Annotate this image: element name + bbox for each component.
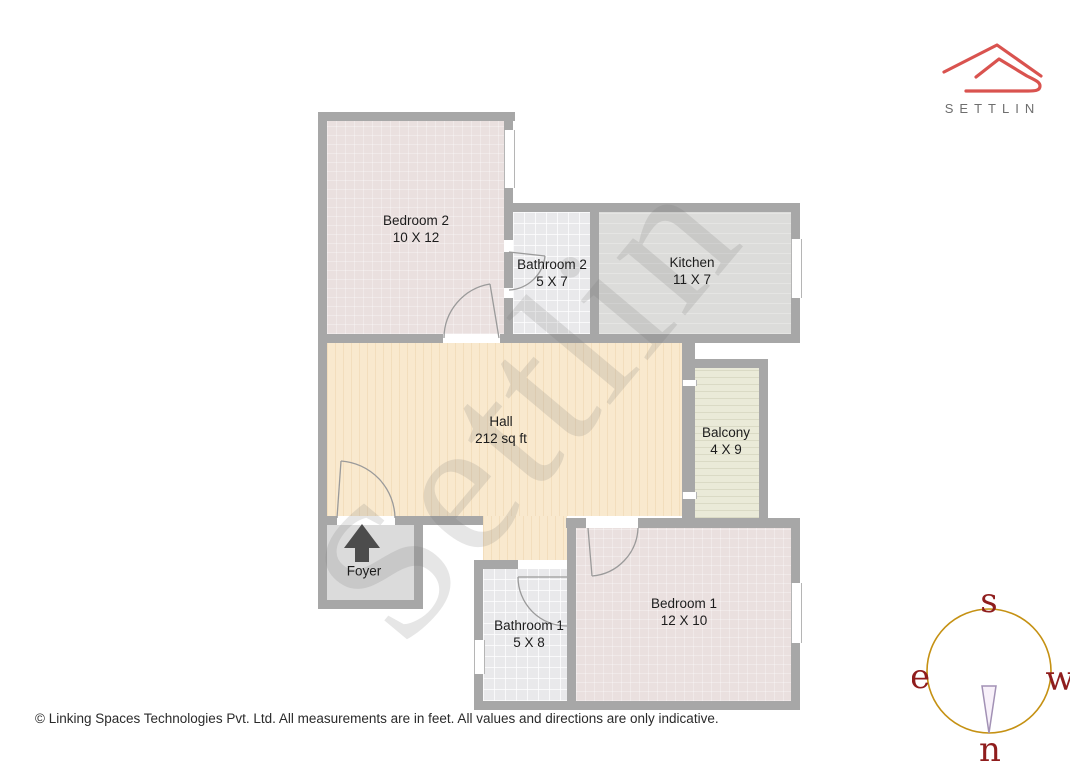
room-name: Balcony xyxy=(702,424,750,441)
door-leaf xyxy=(490,284,499,338)
room-label-foyer: Foyer xyxy=(347,563,382,580)
brand-name: SETTLIN xyxy=(925,101,1060,116)
room-dims: 212 sq ft xyxy=(475,430,527,447)
entrance-arrow-icon xyxy=(344,524,380,548)
room-label-hall: Hall 212 sq ft xyxy=(475,413,527,447)
room-label-bedroom1: Bedroom 1 12 X 10 xyxy=(651,595,717,629)
room-dims: 12 X 10 xyxy=(651,612,717,629)
door-arc xyxy=(592,528,638,576)
copyright-text: © Linking Spaces Technologies Pvt. Ltd. … xyxy=(35,711,719,726)
brand-roof-icon xyxy=(938,32,1048,94)
entrance-arrow-stem xyxy=(355,547,369,562)
brand-logo: SETTLIN xyxy=(925,32,1060,116)
room-name: Foyer xyxy=(347,563,382,580)
room-dims: 5 X 7 xyxy=(517,273,587,290)
room-label-balcony: Balcony 4 X 9 xyxy=(702,424,750,458)
floorplan-page: Settlin Bedroom 2 10 X 12 Bathroom 2 5 X… xyxy=(0,0,1080,764)
room-name: Bedroom 1 xyxy=(651,595,717,612)
room-dims: 11 X 7 xyxy=(669,271,714,288)
room-dims: 4 X 9 xyxy=(702,441,750,458)
room-name: Bathroom 1 xyxy=(494,617,564,634)
door-arc xyxy=(341,461,395,518)
room-label-bathroom1: Bathroom 1 5 X 8 xyxy=(494,617,564,651)
room-label-bedroom2: Bedroom 2 10 X 12 xyxy=(383,212,449,246)
compass-letter-n: n xyxy=(979,730,1001,764)
room-name: Bedroom 2 xyxy=(383,212,449,229)
room-name: Hall xyxy=(475,413,527,430)
compass-letter-e: e xyxy=(912,657,930,697)
compass-letter-s: s xyxy=(980,583,997,621)
room-dims: 5 X 8 xyxy=(494,634,564,651)
room-name: Bathroom 2 xyxy=(517,256,587,273)
room-dims: 10 X 12 xyxy=(383,229,449,246)
door-leaf xyxy=(337,461,341,518)
compass-needle-icon xyxy=(982,686,996,733)
door-arc xyxy=(444,284,490,338)
compass-rose: s e w n xyxy=(912,583,1070,764)
room-label-kitchen: Kitchen 11 X 7 xyxy=(669,254,714,288)
door-leaf xyxy=(588,528,592,576)
room-name: Kitchen xyxy=(669,254,714,271)
compass-letter-w: w xyxy=(1045,659,1070,699)
room-label-bathroom2: Bathroom 2 5 X 7 xyxy=(517,256,587,290)
